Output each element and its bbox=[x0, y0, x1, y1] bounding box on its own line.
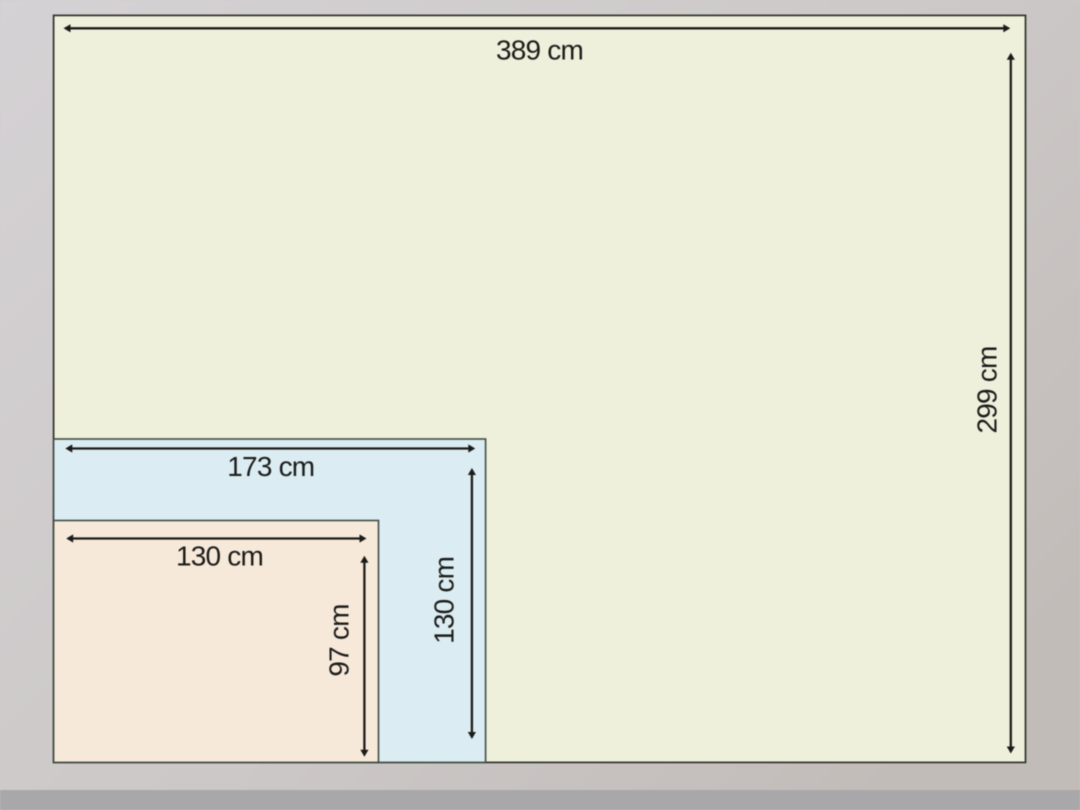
svg-text:130 cm: 130 cm bbox=[176, 541, 263, 572]
svg-text:97 cm: 97 cm bbox=[324, 604, 355, 676]
svg-text:173 cm: 173 cm bbox=[227, 451, 314, 482]
svg-text:299 cm: 299 cm bbox=[972, 346, 1003, 433]
svg-text:130 cm: 130 cm bbox=[429, 557, 460, 644]
svg-text:389 cm: 389 cm bbox=[496, 35, 583, 66]
